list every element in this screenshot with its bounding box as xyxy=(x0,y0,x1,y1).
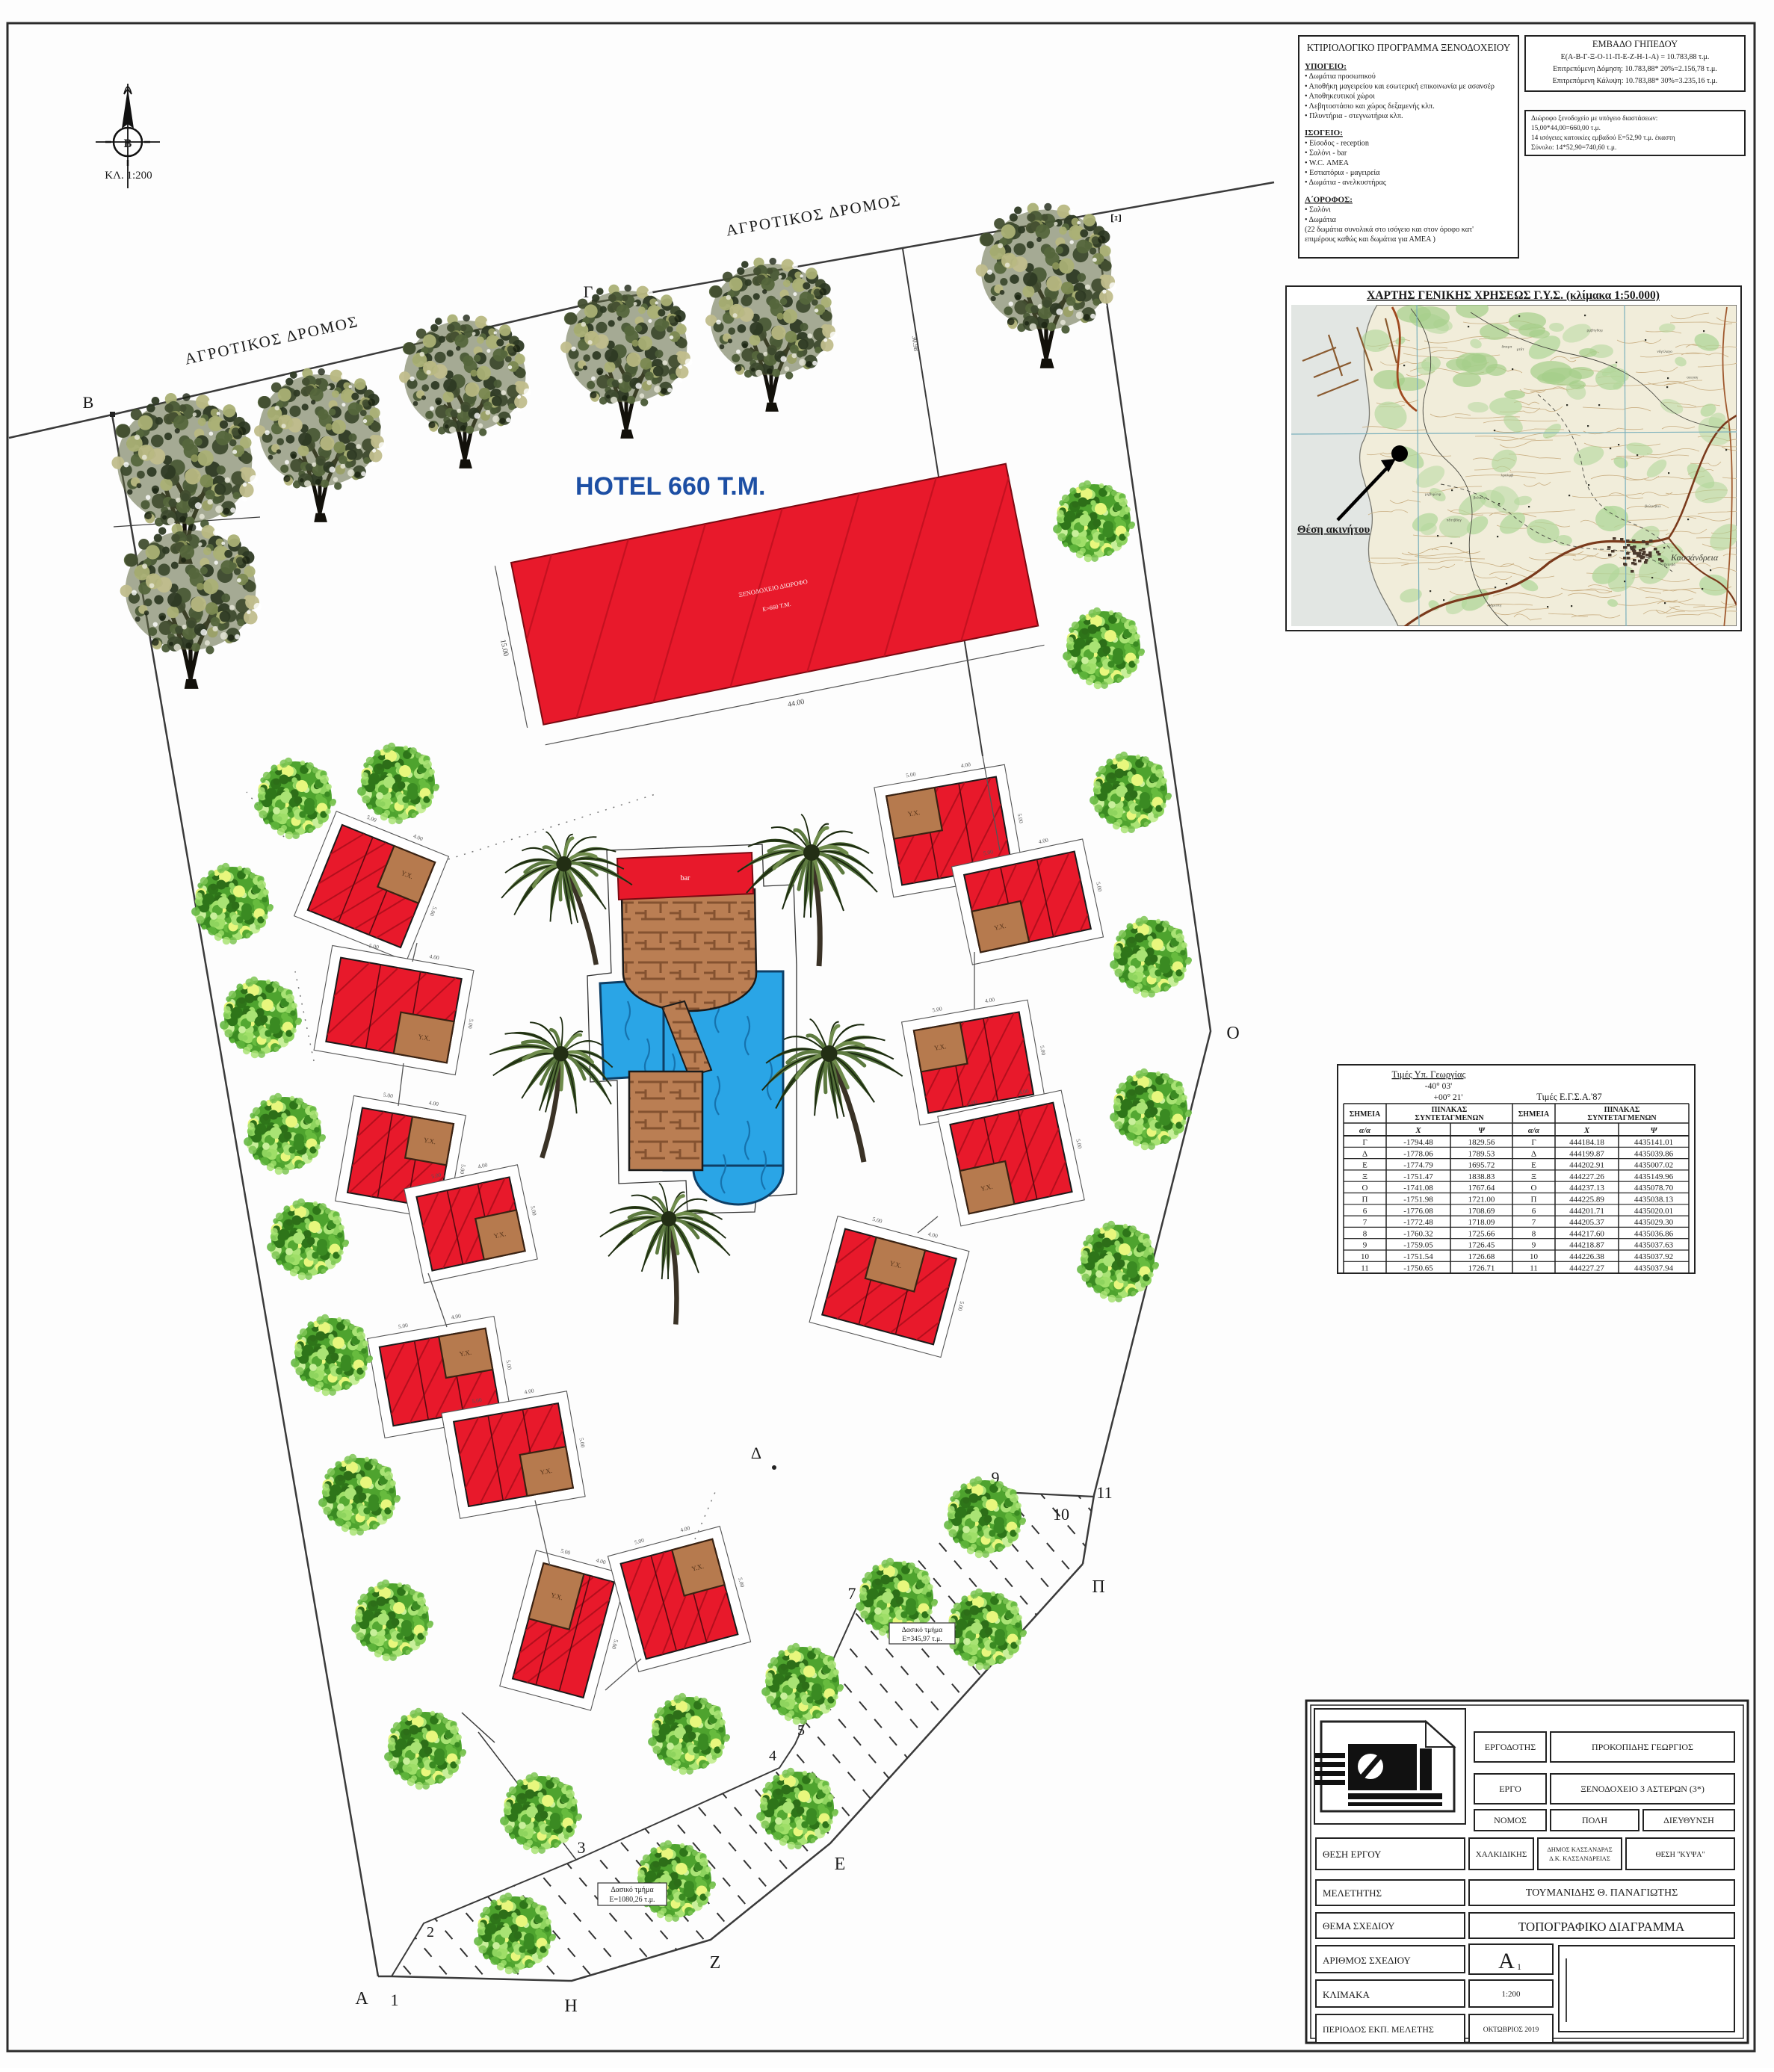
svg-text:4435141.01: 4435141.01 xyxy=(1634,1138,1673,1147)
svg-text:Δασικό τμήμα: Δασικό τμήμα xyxy=(611,1886,654,1894)
svg-text:Α: Α xyxy=(1498,1949,1515,1973)
svg-text:Χ: Χ xyxy=(1415,1126,1421,1135)
svg-text:Επιτρεπόμενη Κάλυψη: 10.783,88: Επιτρεπόμενη Κάλυψη: 10.783,88* 30%=3.23… xyxy=(1553,77,1718,85)
svg-text:Τιμές Ε.Γ.Σ.Α.'87: Τιμές Ε.Γ.Σ.Α.'87 xyxy=(1536,1092,1602,1102)
svg-text:λρολμβ: λρολμβ xyxy=(1501,474,1514,478)
svg-text:Δασικό τμήμα: Δασικό τμήμα xyxy=(902,1627,942,1634)
svg-text:ΤΟΠΟΓΡΑΦΙΚΟ ΔΙΑΓΡΑΜΜΑ: ΤΟΠΟΓΡΑΦΙΚΟ ΔΙΑΓΡΑΜΜΑ xyxy=(1518,1920,1685,1934)
svg-text:444218.87: 444218.87 xyxy=(1569,1241,1604,1250)
svg-text:δδρεπτγ: δδρεπτγ xyxy=(1489,603,1502,607)
svg-text:ΥΠΟΓΕΙΟ:: ΥΠΟΓΕΙΟ: xyxy=(1305,62,1347,71)
svg-text:ΝΟΜΟΣ: ΝΟΜΟΣ xyxy=(1494,1815,1527,1825)
svg-text:1789.53: 1789.53 xyxy=(1468,1149,1495,1158)
svg-text:4435037.63: 4435037.63 xyxy=(1634,1241,1674,1250)
svg-text:ΘΕΣΗ "ΚΥΨΑ": ΘΕΣΗ "ΚΥΨΑ" xyxy=(1655,1851,1705,1859)
svg-text:9: 9 xyxy=(1532,1241,1536,1250)
svg-text:8: 8 xyxy=(1532,1229,1536,1238)
svg-text:Γ: Γ xyxy=(1531,1138,1536,1147)
svg-text:4435036.86: 4435036.86 xyxy=(1634,1229,1674,1238)
svg-text:ΧΑΛΚΙΔΙΚΗΣ: ΧΑΛΚΙΔΙΚΗΣ xyxy=(1476,1850,1527,1859)
svg-text:επιμέρους καθώς και δωμάτια γι: επιμέρους καθώς και δωμάτια για ΑΜΕΑ ) xyxy=(1305,235,1435,244)
svg-text:10: 10 xyxy=(1361,1252,1370,1261)
svg-text:2: 2 xyxy=(427,1924,434,1940)
svg-text:1726.45: 1726.45 xyxy=(1468,1241,1495,1250)
svg-text:9: 9 xyxy=(1363,1241,1367,1250)
svg-text:ΤΟΥΜΑΝΙΔΗΣ Θ. ΠΑΝΑΓΙΩΤΗΣ: ΤΟΥΜΑΝΙΔΗΣ Θ. ΠΑΝΑΓΙΩΤΗΣ xyxy=(1526,1887,1678,1899)
svg-text:ΣΗΜΕΙΑ: ΣΗΜΕΙΑ xyxy=(1518,1110,1550,1119)
svg-text:Θέση ακινήτου: Θέση ακινήτου xyxy=(1297,524,1370,536)
svg-text:• Εστιατόρια - μαγειρεία: • Εστιατόρια - μαγειρεία xyxy=(1305,169,1380,177)
svg-text:ΘΕΜΑ ΣΧΕΔΙΟΥ: ΘΕΜΑ ΣΧΕΔΙΟΥ xyxy=(1323,1920,1395,1932)
svg-text:1725.66: 1725.66 xyxy=(1468,1229,1495,1238)
svg-text:α/α: α/α xyxy=(1359,1126,1371,1135)
svg-text:Ξ: Ξ xyxy=(1107,214,1124,223)
svg-text:Ε=1080,26 τ.μ.: Ε=1080,26 τ.μ. xyxy=(609,1896,655,1904)
svg-text:1: 1 xyxy=(391,1991,399,2009)
svg-text:• Αποθηκευτικοί χώροι: • Αποθηκευτικοί χώροι xyxy=(1305,93,1375,101)
svg-text:444205.37: 444205.37 xyxy=(1569,1218,1604,1227)
svg-text:444217.60: 444217.60 xyxy=(1569,1229,1604,1238)
svg-text:1695.72: 1695.72 xyxy=(1468,1161,1495,1170)
svg-text:• Είσοδος - reception: • Είσοδος - reception xyxy=(1305,139,1369,147)
svg-text:Ε(Α-Β-Γ-Ξ-Ο-11-Π-Ε-Ζ-Η-1-Α) =: Ε(Α-Β-Γ-Ξ-Ο-11-Π-Ε-Ζ-Η-1-Α) = 10.783,88 … xyxy=(1561,53,1710,61)
svg-text:α/α: α/α xyxy=(1528,1126,1540,1135)
svg-text:ΧΑΡΤΗΣ ΓΕΝΙΚΗΣ ΧΡΗΣΕΩΣ Γ.Υ.Σ.: ΧΑΡΤΗΣ ΓΕΝΙΚΗΣ ΧΡΗΣΕΩΣ Γ.Υ.Σ. (κλίμακα 1… xyxy=(1367,289,1660,302)
svg-text:444226.38: 444226.38 xyxy=(1569,1252,1604,1261)
svg-text:ΔΙΕΥΘΥΝΣΗ: ΔΙΕΥΘΥΝΣΗ xyxy=(1663,1815,1714,1825)
svg-text:4: 4 xyxy=(769,1748,776,1764)
svg-text:444199.87: 444199.87 xyxy=(1569,1149,1604,1158)
svg-text:• Πλυντήρια - στεγνωτήρια κλπ.: • Πλυντήρια - στεγνωτήρια κλπ. xyxy=(1305,112,1403,120)
svg-text:ΕΡΓΟΔΟΤΗΣ: ΕΡΓΟΔΟΤΗΣ xyxy=(1485,1742,1536,1752)
svg-text:Γ: Γ xyxy=(584,282,593,301)
svg-text:Σύνολο: 14*52,90=740,60 τ.μ.: Σύνολο: 14*52,90=740,60 τ.μ. xyxy=(1531,144,1616,152)
svg-text:4435078.70: 4435078.70 xyxy=(1634,1184,1674,1193)
svg-text:-1776.08: -1776.08 xyxy=(1403,1207,1433,1216)
svg-text:Π: Π xyxy=(1362,1196,1368,1204)
svg-text:14 ισόγειες κατοικίες εμβαδού: 14 ισόγειες κατοικίες εμβαδού Ε=52,90 τ.… xyxy=(1531,134,1675,142)
svg-text:-1760.32: -1760.32 xyxy=(1403,1229,1433,1238)
svg-text:444225.89: 444225.89 xyxy=(1569,1196,1604,1204)
svg-text:Κασσάνδρεια: Κασσάνδρεια xyxy=(1670,552,1719,563)
svg-text:οβεεεβδ: οβεεεβδ xyxy=(1662,563,1675,567)
svg-text:Β: Β xyxy=(124,137,132,150)
svg-text:-1794.48: -1794.48 xyxy=(1403,1138,1433,1147)
svg-text:7: 7 xyxy=(1363,1218,1367,1227)
svg-text:4435039.86: 4435039.86 xyxy=(1634,1149,1674,1158)
svg-text:ΜΕΛΕΤΗΤΗΣ: ΜΕΛΕΤΗΤΗΣ xyxy=(1323,1887,1382,1899)
svg-text:4435149.96: 4435149.96 xyxy=(1634,1172,1674,1181)
svg-text:ΔΗΜΟΣ ΚΑΣΣΑΝΔΡΑΣ: ΔΗΜΟΣ ΚΑΣΣΑΝΔΡΑΣ xyxy=(1547,1846,1612,1853)
svg-text:ΑΡΙΘΜΟΣ ΣΧΕΔΙΟΥ: ΑΡΙΘΜΟΣ ΣΧΕΔΙΟΥ xyxy=(1323,1955,1411,1966)
svg-text:5: 5 xyxy=(797,1722,805,1739)
svg-text:10: 10 xyxy=(1053,1505,1069,1524)
svg-text:444202.91: 444202.91 xyxy=(1569,1161,1604,1170)
svg-text:8: 8 xyxy=(1363,1229,1367,1238)
svg-text:οεεγαγ: οεεγαγ xyxy=(1687,376,1699,380)
svg-text:μτδτ: μτδτ xyxy=(1517,347,1525,352)
svg-text:Δ: Δ xyxy=(751,1444,761,1462)
svg-text:Η: Η xyxy=(564,1997,577,2016)
svg-text:Ε: Ε xyxy=(1362,1161,1367,1170)
svg-text:ΞΕΝΟΔΟΧΕΙΟ 3 ΑΣΤΕΡΩΝ (3*): ΞΕΝΟΔΟΧΕΙΟ 3 ΑΣΤΕΡΩΝ (3*) xyxy=(1580,1784,1705,1794)
svg-text:Ο: Ο xyxy=(1531,1184,1537,1193)
svg-text:ΣΗΜΕΙΑ: ΣΗΜΕΙΑ xyxy=(1350,1110,1381,1119)
svg-text:444237.13: 444237.13 xyxy=(1569,1184,1604,1193)
svg-text:1708.69: 1708.69 xyxy=(1468,1207,1495,1216)
svg-text:Επιτρεπόμενη Δόμηση: 10.783,88: Επιτρεπόμενη Δόμηση: 10.783,88* 20%=2.15… xyxy=(1553,65,1717,73)
svg-text:Ε=345,97 τ.μ.: Ε=345,97 τ.μ. xyxy=(902,1636,942,1643)
svg-text:Ζ: Ζ xyxy=(710,1953,721,1973)
svg-text:Ψ: Ψ xyxy=(1478,1126,1486,1135)
svg-text:444184.18: 444184.18 xyxy=(1569,1138,1604,1147)
svg-text:10: 10 xyxy=(1530,1252,1539,1261)
svg-text:1726.71: 1726.71 xyxy=(1468,1264,1495,1272)
svg-text:+00° 21': +00° 21' xyxy=(1433,1093,1462,1102)
svg-text:ΚΛΙΜΑΚΑ: ΚΛΙΜΑΚΑ xyxy=(1323,1989,1370,2000)
svg-text:HOTEL 660 Τ.Μ.: HOTEL 660 Τ.Μ. xyxy=(575,472,765,501)
svg-text:βελαλγτ: βελαλγτ xyxy=(1474,495,1488,500)
svg-text:Ε: Ε xyxy=(835,1855,846,1874)
svg-text:πδττβδγγ: πδττβδγγ xyxy=(1447,518,1462,522)
svg-text:ΠΡΟΚΟΠΙΔΗΣ ΓΕΩΡΓΙΟΣ: ΠΡΟΚΟΠΙΔΗΣ ΓΕΩΡΓΙΟΣ xyxy=(1592,1742,1693,1752)
svg-text:Β: Β xyxy=(83,393,94,412)
svg-text:Α΄ΟΡΟΦΟΣ:: Α΄ΟΡΟΦΟΣ: xyxy=(1305,195,1353,204)
svg-text:Α: Α xyxy=(355,1989,368,2008)
svg-text:3: 3 xyxy=(578,1838,586,1857)
svg-text:444227.26: 444227.26 xyxy=(1569,1172,1604,1181)
svg-text:-1750.65: -1750.65 xyxy=(1403,1264,1433,1272)
svg-text:Δ.Κ. ΚΑΣΣΑΝΔΡΕΙΑΣ: Δ.Κ. ΚΑΣΣΑΝΔΡΕΙΑΣ xyxy=(1549,1855,1610,1862)
svg-text:• Σαλόνι - bar: • Σαλόνι - bar xyxy=(1305,149,1347,158)
svg-text:μγβνμλνρ: μγβνμλνρ xyxy=(1425,492,1441,497)
svg-text:1721.00: 1721.00 xyxy=(1468,1196,1495,1204)
svg-text:Διώροφο ξενοδοχείο με υπόγειο: Διώροφο ξενοδοχείο με υπόγειο διαστάσεων… xyxy=(1531,115,1657,123)
svg-text:ΠΟΛΗ: ΠΟΛΗ xyxy=(1582,1815,1607,1825)
svg-text:• Δωμάτια: • Δωμάτια xyxy=(1305,216,1336,224)
svg-text:Χ: Χ xyxy=(1583,1126,1590,1135)
svg-text:ΣΥΝΤΕΤΑΓΜΕΝΩΝ: ΣΥΝΤΕΤΑΓΜΕΝΩΝ xyxy=(1415,1114,1484,1122)
svg-text:Δ: Δ xyxy=(1531,1149,1536,1158)
svg-text:• Λεβητοστάσιο και χώρος δεξαμ: • Λεβητοστάσιο και χώρος δεξαμενής κλπ. xyxy=(1305,102,1435,111)
svg-text:ΠΕΡΙΟΔΟΣ ΕΚΠ. ΜΕΛΕΤΗΣ: ΠΕΡΙΟΔΟΣ ΕΚΠ. ΜΕΛΕΤΗΣ xyxy=(1323,2024,1434,2035)
svg-text:-1751.98: -1751.98 xyxy=(1403,1196,1433,1204)
svg-text:δπομπ: δπομπ xyxy=(1501,344,1512,349)
svg-text:4435037.94: 4435037.94 xyxy=(1634,1264,1674,1272)
svg-text:1: 1 xyxy=(1517,1961,1521,1972)
svg-text:ΘΕΣΗ ΕΡΓΟΥ: ΘΕΣΗ ΕΡΓΟΥ xyxy=(1323,1849,1382,1860)
svg-text:ΚΛ. 1:200: ΚΛ. 1:200 xyxy=(105,170,152,182)
svg-text:• Δωμάτια - ανελκυστήρας: • Δωμάτια - ανελκυστήρας xyxy=(1305,179,1386,187)
svg-text:4435038.13: 4435038.13 xyxy=(1634,1196,1674,1204)
svg-text:7: 7 xyxy=(848,1584,856,1603)
svg-text:1:200: 1:200 xyxy=(1501,1990,1521,1999)
svg-text:Π: Π xyxy=(1531,1196,1537,1204)
svg-text:-1772.48: -1772.48 xyxy=(1403,1218,1433,1227)
svg-text:-40° 03': -40° 03' xyxy=(1425,1082,1452,1091)
svg-text:-1774.79: -1774.79 xyxy=(1403,1161,1433,1170)
svg-text:Π: Π xyxy=(1092,1577,1104,1597)
svg-text:1726.68: 1726.68 xyxy=(1468,1252,1495,1261)
svg-text:ΠΙΝΑΚΑΣ: ΠΙΝΑΚΑΣ xyxy=(1604,1106,1640,1114)
svg-text:(22 δωμάτια συνολικά στο ισόγε: (22 δωμάτια συνολικά στο ισόγειο και στο… xyxy=(1305,226,1474,234)
svg-text:• W.C. ΑΜΕΑ: • W.C. ΑΜΕΑ xyxy=(1305,159,1350,167)
svg-text:-1759.05: -1759.05 xyxy=(1403,1241,1433,1250)
svg-text:1767.64: 1767.64 xyxy=(1468,1184,1495,1193)
svg-text:1718.09: 1718.09 xyxy=(1468,1218,1495,1227)
svg-text:ΚΤΙΡΙΟΛΟΓΙΚΟ ΠΡΟΓΡΑΜΜΑ ΞΕΝΟΔΟΧ: ΚΤΙΡΙΟΛΟΓΙΚΟ ΠΡΟΓΡΑΜΜΑ ΞΕΝΟΔΟΧΕΙΟΥ xyxy=(1307,42,1511,53)
svg-text:Ο: Ο xyxy=(1226,1024,1239,1043)
svg-text:Ε: Ε xyxy=(1531,1161,1536,1170)
svg-text:ΠΙΝΑΚΑΣ: ΠΙΝΑΚΑΣ xyxy=(1432,1106,1468,1114)
svg-text:ΟΚΤΩΒΡΙΟΣ 2019: ΟΚΤΩΒΡΙΟΣ 2019 xyxy=(1483,2026,1539,2034)
svg-text:-1778.06: -1778.06 xyxy=(1403,1149,1433,1158)
svg-text:4435029.30: 4435029.30 xyxy=(1634,1218,1674,1227)
svg-text:1829.56: 1829.56 xyxy=(1468,1138,1495,1147)
svg-text:ΕΡΓΟ: ΕΡΓΟ xyxy=(1499,1784,1521,1794)
svg-text:-1751.54: -1751.54 xyxy=(1403,1252,1433,1261)
svg-text:11: 11 xyxy=(1361,1264,1369,1272)
svg-text:15,00*44,00=660,00 τ.μ.: 15,00*44,00=660,00 τ.μ. xyxy=(1531,125,1601,132)
svg-text:Δ: Δ xyxy=(1362,1149,1367,1158)
svg-text:ΣΥΝΤΕΤΑΓΜΕΝΩΝ: ΣΥΝΤΕΤΑΓΜΕΝΩΝ xyxy=(1587,1114,1657,1122)
svg-text:444201.71: 444201.71 xyxy=(1569,1207,1604,1216)
svg-text:7: 7 xyxy=(1532,1218,1536,1227)
svg-text:ΕΜΒΑΔΟ ΓΗΠΕΔΟΥ: ΕΜΒΑΔΟ ΓΗΠΕΔΟΥ xyxy=(1592,39,1678,49)
svg-text:βολοεβολ: βολοεβολ xyxy=(1645,504,1661,509)
svg-text:4435007.02: 4435007.02 xyxy=(1634,1161,1673,1170)
svg-text:6: 6 xyxy=(1363,1207,1367,1216)
svg-text:4435020.01: 4435020.01 xyxy=(1634,1207,1673,1216)
svg-text:11: 11 xyxy=(1096,1483,1112,1502)
svg-text:Ξ: Ξ xyxy=(1362,1172,1367,1181)
svg-text:νδγτλαγο: νδγτλαγο xyxy=(1657,350,1672,354)
svg-text:1838.83: 1838.83 xyxy=(1468,1172,1495,1181)
svg-text:• Αποθήκη μαγειρείου και εσωτε: • Αποθήκη μαγειρείου και εσωτερική επικο… xyxy=(1305,82,1495,90)
svg-text:bar: bar xyxy=(681,874,690,882)
svg-text:Τιμές Υπ. Γεωργίας: Τιμές Υπ. Γεωργίας xyxy=(1391,1069,1465,1080)
svg-text:11: 11 xyxy=(1530,1264,1538,1272)
svg-text:-1751.47: -1751.47 xyxy=(1403,1172,1433,1181)
svg-text:-1741.08: -1741.08 xyxy=(1403,1184,1433,1193)
svg-text:• Δωμάτια προσωπικού: • Δωμάτια προσωπικού xyxy=(1305,72,1376,81)
svg-text:4435037.92: 4435037.92 xyxy=(1634,1252,1673,1261)
svg-text:Γ: Γ xyxy=(1362,1138,1367,1147)
svg-text:• Σαλόνι: • Σαλόνι xyxy=(1305,206,1331,214)
svg-text:ρμβτγδομ: ρμβτγδομ xyxy=(1586,329,1602,333)
svg-text:Ο: Ο xyxy=(1362,1184,1368,1193)
svg-text:444227.27: 444227.27 xyxy=(1569,1264,1604,1272)
svg-text:6: 6 xyxy=(1532,1207,1536,1216)
svg-text:Ψ: Ψ xyxy=(1651,1126,1658,1135)
svg-text:ΙΣΟΓΕΙΟ:: ΙΣΟΓΕΙΟ: xyxy=(1305,129,1343,137)
svg-text:Ξ: Ξ xyxy=(1531,1172,1536,1181)
